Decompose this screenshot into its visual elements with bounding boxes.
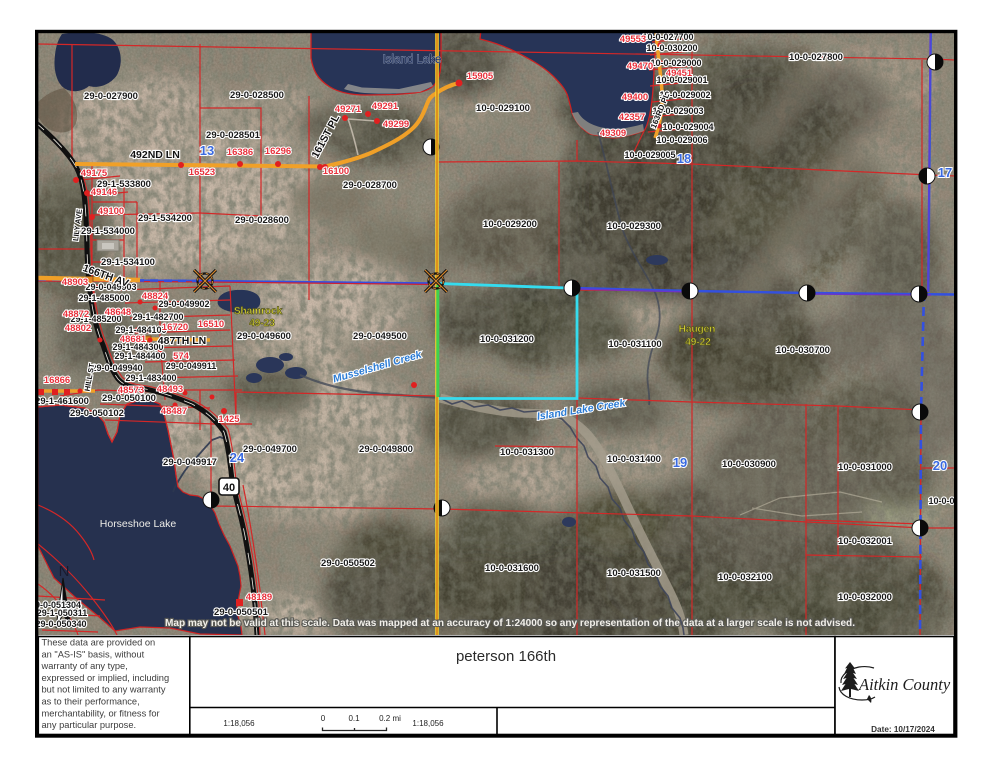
svg-text:49291: 49291 [372,101,399,112]
svg-text:Shamrock: Shamrock [234,306,283,317]
svg-text:48493: 48493 [157,384,183,395]
svg-text:29-0-049600: 29-0-049600 [237,331,291,342]
svg-text:any particular purpose.: any particular purpose. [42,720,137,730]
svg-text:49400: 49400 [622,92,648,103]
svg-text:10-0-030900: 10-0-030900 [722,459,776,470]
svg-text:18: 18 [677,151,691,166]
svg-text:an "AS-IS" basis, without: an "AS-IS" basis, without [42,649,145,659]
svg-text:16296: 16296 [265,146,291,157]
svg-text:16510: 16510 [198,319,224,330]
svg-text:0: 0 [321,714,326,723]
svg-text:10-0-027800: 10-0-027800 [789,52,843,63]
svg-text:Date: 10/17/2024: Date: 10/17/2024 [871,725,935,734]
svg-text:29-1-483400: 29-1-483400 [125,373,176,383]
svg-text:10-0-029006: 10-0-029006 [656,135,707,145]
svg-text:17: 17 [938,165,952,180]
svg-text:10-0-031200: 10-0-031200 [480,334,534,345]
svg-text:20: 20 [933,458,947,473]
svg-text:10-0-032100: 10-0-032100 [718,572,772,583]
svg-text:15905: 15905 [467,71,494,82]
svg-text:487TH LN: 487TH LN [158,335,206,347]
svg-text:10-0-029300: 10-0-029300 [607,221,661,232]
svg-text:10-0-032000: 10-0-032000 [838,592,892,603]
svg-text:Haugen: Haugen [679,324,716,335]
svg-text:16720: 16720 [162,322,188,333]
svg-text:29-0-028700: 29-0-028700 [343,180,397,191]
svg-text:10-0-032001: 10-0-032001 [838,536,893,547]
svg-text:29-1-485000: 29-1-485000 [78,293,129,303]
svg-text:Map may not be valid at this s: Map may not be valid at this scale. Data… [165,618,855,629]
svg-text:29-0-050102: 29-0-050102 [70,408,124,419]
svg-text:48802: 48802 [65,323,91,334]
svg-text:10-0-029005: 10-0-029005 [624,150,675,160]
svg-text:49-22: 49-22 [685,337,711,348]
svg-text:48487: 48487 [161,406,187,417]
svg-text:29-0-050340: 29-0-050340 [35,619,86,629]
svg-text:19: 19 [673,455,687,470]
svg-text:48648: 48648 [105,307,131,318]
svg-text:10-0-031400: 10-0-031400 [607,454,661,465]
svg-text:49146: 49146 [91,187,117,198]
svg-text:10-0-031000: 10-0-031000 [838,462,892,473]
svg-text:1:18,056: 1:18,056 [412,719,444,728]
svg-text:29-0-049500: 29-0-049500 [353,331,407,342]
svg-text:29-0-049700: 29-0-049700 [243,444,297,455]
svg-text:10-0-031300: 10-0-031300 [500,447,554,458]
svg-text:49271: 49271 [335,104,362,115]
svg-text:29-1-534000: 29-1-534000 [81,226,135,237]
svg-text:29-0-049800: 29-0-049800 [359,444,413,455]
svg-text:10-0-029100: 10-0-029100 [476,103,530,114]
svg-text:29-0-050501: 29-0-050501 [214,607,269,618]
svg-text:10-0-031500: 10-0-031500 [607,568,661,579]
svg-text:warranty of any type,: warranty of any type, [41,661,128,671]
svg-text:peterson 166th: peterson 166th [456,648,556,665]
svg-text:N: N [59,563,70,580]
svg-text:expressed or implied, includin: expressed or implied, including [42,673,170,683]
svg-text:merchantability, or fitness fo: merchantability, or fitness for [42,708,160,718]
svg-text:29-0-027900: 29-0-027900 [84,91,138,102]
svg-text:49470: 49470 [627,61,653,72]
svg-text:1425: 1425 [218,414,240,425]
svg-text:29-0-050502: 29-0-050502 [321,558,375,569]
svg-text:but not limited to any warrant: but not limited to any warranty [42,685,166,695]
svg-text:16866: 16866 [44,375,70,386]
svg-text:16100: 16100 [323,166,349,177]
svg-text:492ND LN: 492ND LN [130,149,180,161]
svg-text:Island Lake: Island Lake [383,54,442,66]
svg-text:Aitkin County: Aitkin County [858,675,951,694]
svg-text:29-0-028500: 29-0-028500 [230,90,284,101]
svg-text:49309: 49309 [600,128,626,139]
svg-text:49-23: 49-23 [249,318,275,329]
svg-text:49100: 49100 [98,206,124,217]
svg-text:48573: 48573 [118,385,144,396]
svg-text:29-0-028600: 29-0-028600 [235,215,289,226]
svg-text:49553: 49553 [620,34,646,45]
svg-text:10-0-029004: 10-0-029004 [662,122,713,132]
svg-text:1:18,056: 1:18,056 [223,719,255,728]
svg-text:29-0-049911: 29-0-049911 [166,361,217,371]
svg-text:574: 574 [173,351,190,362]
svg-text:29-1-534100: 29-1-534100 [101,257,155,268]
svg-text:29-1-534200: 29-1-534200 [138,213,192,224]
svg-text:29-1-050311: 29-1-050311 [37,608,88,618]
svg-text:10-0-030700: 10-0-030700 [776,345,830,356]
svg-text:48872: 48872 [63,309,89,320]
svg-text:24: 24 [230,450,245,465]
svg-text:29-1-461600: 29-1-461600 [35,396,89,407]
svg-text:16386: 16386 [227,147,253,158]
svg-text:10-0-031100: 10-0-031100 [608,339,661,350]
svg-text:10-0-027700: 10-0-027700 [642,32,693,42]
svg-text:10-0-031600: 10-0-031600 [485,563,539,574]
svg-text:42357: 42357 [619,112,645,123]
svg-text:These data are provided on: These data are provided on [42,638,156,648]
svg-text:40: 40 [223,482,235,494]
svg-text:29-1-484400: 29-1-484400 [114,351,165,361]
svg-text:48681: 48681 [120,334,147,345]
svg-text:0.2 mi: 0.2 mi [379,714,401,723]
svg-text:29-0-049917: 29-0-049917 [163,457,217,468]
svg-text:49299: 49299 [383,119,409,130]
svg-text:49175: 49175 [81,168,108,179]
svg-text:10-0-030200: 10-0-030200 [646,43,697,53]
svg-text:10-0-029200: 10-0-029200 [483,219,537,230]
svg-text:29-0-028501: 29-0-028501 [206,130,261,141]
svg-text:48189: 48189 [246,592,272,603]
svg-text:29-1-482700: 29-1-482700 [132,312,183,322]
svg-text:Horseshoe Lake: Horseshoe Lake [100,518,177,530]
svg-text:0.1: 0.1 [348,714,360,723]
svg-text:48903: 48903 [62,277,88,288]
svg-text:48824: 48824 [142,291,169,302]
svg-text:29-0-049940: 29-0-049940 [91,363,142,373]
svg-text:as to their performance,: as to their performance, [42,697,140,707]
svg-text:49451: 49451 [666,68,693,79]
svg-text:10-0-029000: 10-0-029000 [650,58,701,68]
svg-text:13: 13 [200,143,214,158]
svg-text:16523: 16523 [189,167,215,178]
